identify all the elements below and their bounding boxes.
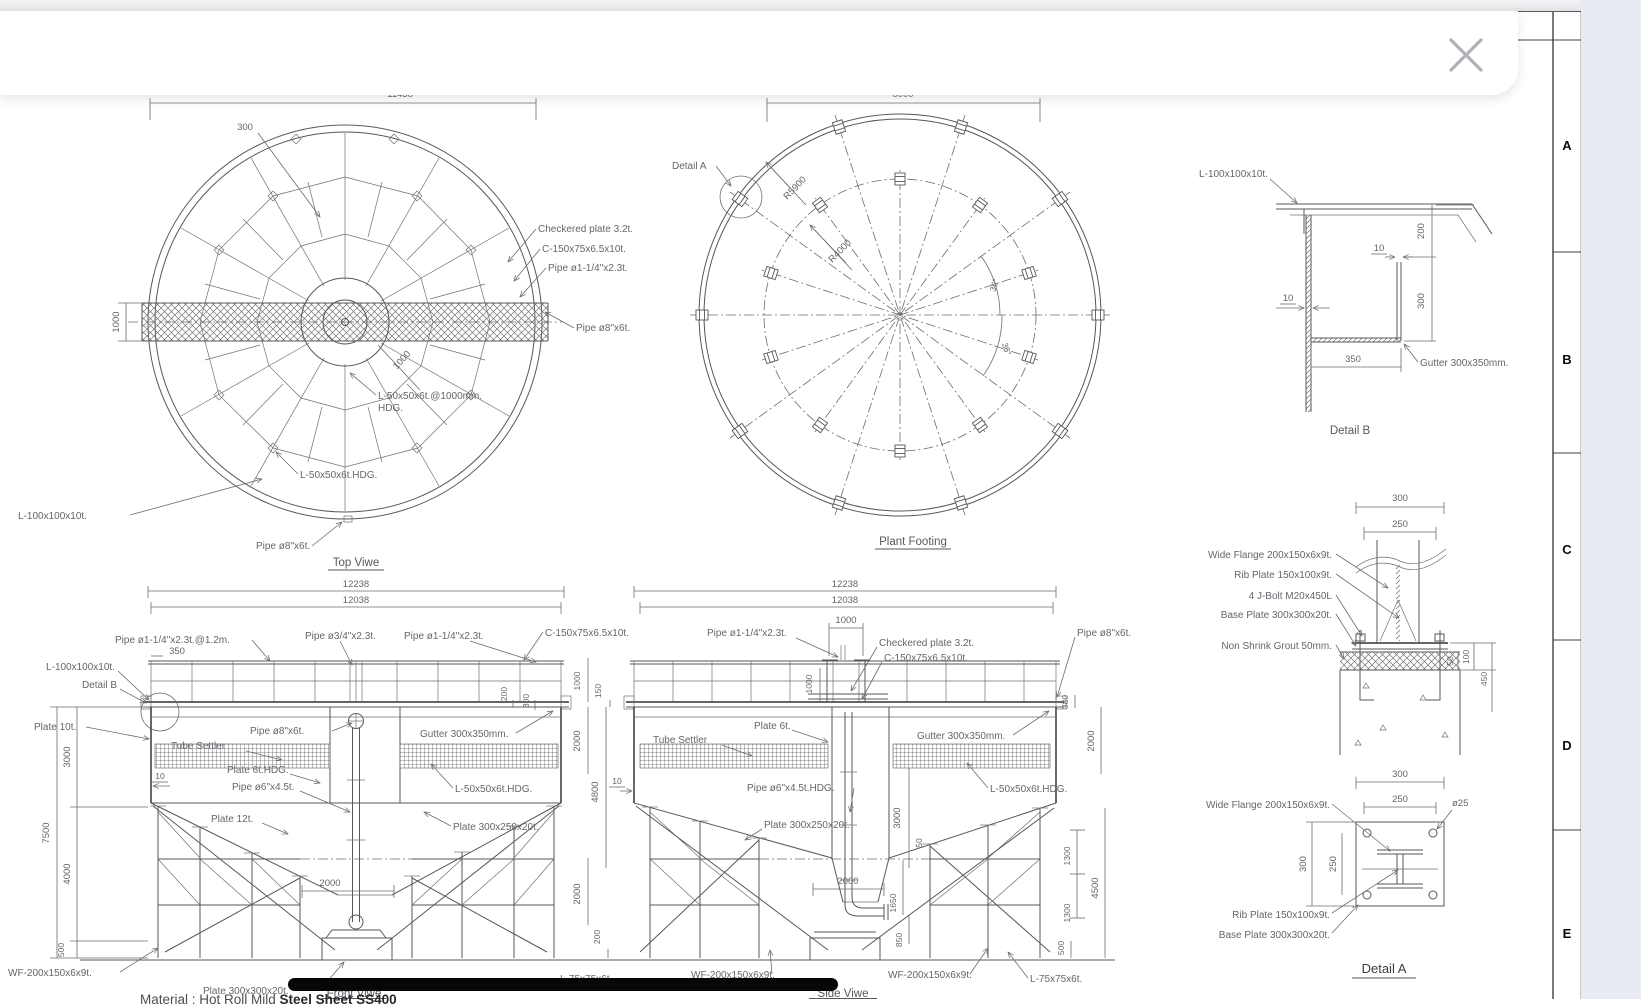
dim-100-da: 100 <box>1461 650 1471 664</box>
dim-500-side: 500 <box>1056 941 1066 955</box>
dim-2000-mid2: 2000 <box>572 883 583 904</box>
dim-2000-side-c: 2000 <box>837 876 858 887</box>
label-wf-front: WF-200x150x6x9t. <box>8 968 92 979</box>
middle-dims: 1000 150 2000 4800 10 2000 200 <box>572 658 632 958</box>
dim-1300-side-b: 1300 <box>1062 903 1072 922</box>
dim-4000-front: 4000 <box>62 863 73 884</box>
dim-2000-side-r: 2000 <box>1086 730 1097 751</box>
dim-3000-side: 3000 <box>892 807 903 828</box>
label-checkered-plate: Checkered plate 3.2t. <box>538 224 633 235</box>
dim-10-front: 10 <box>155 771 165 781</box>
dim-250-da3: 250 <box>1328 856 1339 872</box>
dim-10-db-left: 10 <box>1283 293 1294 304</box>
dim-300-rim: 300 <box>237 122 253 133</box>
dim-3000-front: 3000 <box>62 746 73 767</box>
dim-1000-mid: 1000 <box>572 671 582 690</box>
dim-300-da3: 300 <box>1298 856 1309 872</box>
dim-450-da: 450 <box>1479 672 1489 686</box>
dim-250-da1: 250 <box>1392 519 1408 530</box>
label-angle-36-upper: 36° <box>987 277 1000 292</box>
label-angle-50-hdg-front: L-50x50x6t.HDG. <box>455 784 532 795</box>
label-base-plate: Base Plate 300x300x20t. <box>1221 610 1332 621</box>
top-view-linework <box>118 98 574 570</box>
label-plate-6t-hdg: Plate 6t.HDG. <box>227 765 289 776</box>
plant-footing-linework <box>690 98 1110 549</box>
dim-500-front: 500 <box>56 943 66 957</box>
dim-350-front: 350 <box>169 646 185 657</box>
label-pipe-8-front: Pipe ø8"x6t. <box>250 726 304 737</box>
label-pipe-8: Pipe ø8"x6t. <box>576 323 630 334</box>
label-gutter-side: Gutter 300x350mm. <box>917 731 1005 742</box>
label-angle-50-hdg-side: L-50x50x6t.HDG. <box>990 784 1067 795</box>
dim-4800-mid: 4800 <box>590 781 601 802</box>
label-angle-50-hdg: L-50x50x6t.HDG. <box>300 470 377 481</box>
dim-350-db: 350 <box>1345 354 1361 365</box>
label-r4000: R4000 <box>827 237 854 265</box>
dim-2000-front: 2000 <box>319 878 340 889</box>
label-pipe-1-14-front: Pipe ø1-1/4"x2.3t. <box>404 631 484 642</box>
detail-a-section-linework <box>1336 502 1496 755</box>
label-r5900: R5900 <box>782 174 809 202</box>
side-view-labels: 12238 12038 1000 Pipe ø1-1/4"x2.3t. Chec… <box>653 579 1131 999</box>
label-angle-36-lower: 36° <box>1000 341 1014 357</box>
label-plate-6t: Plate 6t. <box>754 721 791 732</box>
dim-150-mid: 150 <box>593 684 603 698</box>
redaction-bar <box>288 978 838 991</box>
dim-1000-spacing: 1000 <box>391 349 413 372</box>
zone-letter-b: B <box>1553 352 1581 367</box>
label-plate-300-250-front: Plate 300x250x20t. <box>453 822 539 833</box>
zone-letter-c: C <box>1553 542 1581 557</box>
detail-a-plan-labels: 300 250 ø25 Wide Flange 200x150x6x9t. 30… <box>1206 769 1468 976</box>
dim-200-front: 200 <box>499 687 509 701</box>
zone-letter-a: A <box>1553 138 1581 153</box>
dim-300-da2: 300 <box>1392 769 1408 780</box>
label-pipe-8-side: Pipe ø8"x6t. <box>1077 628 1131 639</box>
material-note-bold: Steel Sheet SS400 <box>280 992 397 1007</box>
label-base-plate-plan: Base Plate 300x300x20t. <box>1219 930 1330 941</box>
label-plate-300-250-side: Plate 300x250x20t. <box>764 820 850 831</box>
label-wide-flange-plan: Wide Flange 200x150x6x9t. <box>1206 800 1330 811</box>
dim-7500-front: 7500 <box>41 822 52 843</box>
dim-1000-stack-h: 1000 <box>804 674 814 693</box>
label-pipe-34: Pipe ø3/4"x2.3t. <box>305 631 376 642</box>
dim-380-side: 380 <box>1060 695 1070 709</box>
label-angle-100-front: L-100x100x10t. <box>46 662 115 673</box>
label-pipe-1-14-12m: Pipe ø1-1/4"x2.3t.@1.2m. <box>115 635 230 646</box>
label-angle-75-side: L-75x75x6t. <box>1030 974 1082 985</box>
dim-200-db: 200 <box>1416 223 1427 239</box>
dim-12038-side: 12038 <box>832 595 858 606</box>
label-tube-settler-front: Tube Settler <box>171 741 226 752</box>
label-plate-10t: Plate 10t. <box>34 722 76 733</box>
dim-200-mid: 200 <box>592 930 602 944</box>
material-note-text: Material : Hot Roll Mild <box>140 992 280 1007</box>
dim-12038-front: 12038 <box>343 595 369 606</box>
label-pipe-8-bottom: Pipe ø8"x6t. <box>256 541 310 552</box>
drawing-viewer: 11438 300 1000 Checkered plate 3.2t. C-1… <box>0 0 1641 999</box>
dim-12238-side: 12238 <box>832 579 858 590</box>
dim-850-side: 850 <box>894 933 904 947</box>
label-angle-100: L-100x100x10t. <box>18 511 87 522</box>
label-detail-a-ref: Detail A <box>672 161 707 172</box>
dim-300-da1: 300 <box>1392 493 1408 504</box>
label-rib-plate-plan: Rib Plate 150x100x9t. <box>1232 910 1330 921</box>
label-c-channel: C-150x75x6.5x10t. <box>542 244 626 255</box>
dim-4500-side: 4500 <box>1090 877 1101 898</box>
dim-1000-stack: 1000 <box>835 615 856 626</box>
dim-50-da: 50 <box>1445 656 1455 666</box>
dim-50-side: 50 <box>914 838 924 848</box>
title-detail-b: Detail B <box>1330 425 1371 437</box>
label-wide-flange: Wide Flange 200x150x6x9t. <box>1208 550 1332 561</box>
dim-300-db: 300 <box>1416 293 1427 309</box>
label-j-bolt: 4 J-Bolt M20x450L <box>1249 591 1333 602</box>
right-gutter <box>1581 0 1641 999</box>
dim-12238-front: 12238 <box>343 579 369 590</box>
label-angle-100-db: L-100x100x10t. <box>1199 169 1268 180</box>
label-detail-b-ref: Detail B <box>82 680 117 691</box>
dim-250-da2: 250 <box>1392 794 1408 805</box>
dim-1650-side: 1650 <box>888 893 898 912</box>
dim-10-db-top: 10 <box>1374 243 1385 254</box>
plant-footing-labels: 8000 Detail A R5900 R4000 36° 36° Plant … <box>672 89 1014 548</box>
label-pipe-6-front: Pipe ø6"x4.5t. <box>232 782 294 793</box>
material-note: Material : Hot Roll Mild Steel Sheet SS4… <box>140 992 397 1007</box>
title-top-view: Top Viwe <box>333 557 379 569</box>
label-c-channel-side: C-150x75x6.5x10t. <box>884 653 968 664</box>
label-plate-12t: Plate 12t. <box>211 814 253 825</box>
label-gutter-front: Gutter 300x350mm. <box>420 729 508 740</box>
cad-drawing-sheet: 11438 300 1000 Checkered plate 3.2t. C-1… <box>0 0 1641 999</box>
detail-b-linework <box>1270 179 1492 412</box>
zone-letter-d: D <box>1553 738 1581 753</box>
label-pipe-6-hdg: Pipe ø6"x4.5t.HDG. <box>747 783 834 794</box>
label-gutter-db: Gutter 300x350mm. <box>1420 358 1508 369</box>
label-pipe-1-14-side: Pipe ø1-1/4"x2.3t. <box>707 628 787 639</box>
close-icon <box>1440 29 1492 81</box>
dim-300-front: 300 <box>521 694 531 708</box>
close-button[interactable] <box>1440 29 1492 81</box>
label-c-channel-mid: C-150x75x6.5x10t. <box>545 628 629 639</box>
title-plant-footing: Plant Footing <box>879 536 947 548</box>
label-hdg: HDG. <box>378 403 403 414</box>
dim-1000-walkway: 1000 <box>111 311 122 332</box>
label-tube-settler-side: Tube Settler <box>653 735 708 746</box>
label-pipe-1-14: Pipe ø1-1/4"x2.3t. <box>548 263 628 274</box>
label-angle-50-1000: L-50x50x6t.@1000mm. <box>378 391 482 402</box>
zone-letter-e: E <box>1553 926 1581 941</box>
label-grout: Non Shrink Grout 50mm. <box>1221 641 1332 652</box>
dim-2000-mid: 2000 <box>572 730 583 751</box>
dim-1300-side-a: 1300 <box>1062 846 1072 865</box>
dim-10-mid: 10 <box>612 776 622 786</box>
label-rib-plate: Rib Plate 150x100x9t. <box>1234 570 1332 581</box>
label-wf-side-right: WF-200x150x6x9t. <box>888 970 972 981</box>
title-detail-a: Detail A <box>1362 961 1407 976</box>
dialog-header <box>0 11 1518 95</box>
label-dia-25: ø25 <box>1452 798 1468 809</box>
label-checkered-plate-side: Checkered plate 3.2t. <box>879 638 974 649</box>
